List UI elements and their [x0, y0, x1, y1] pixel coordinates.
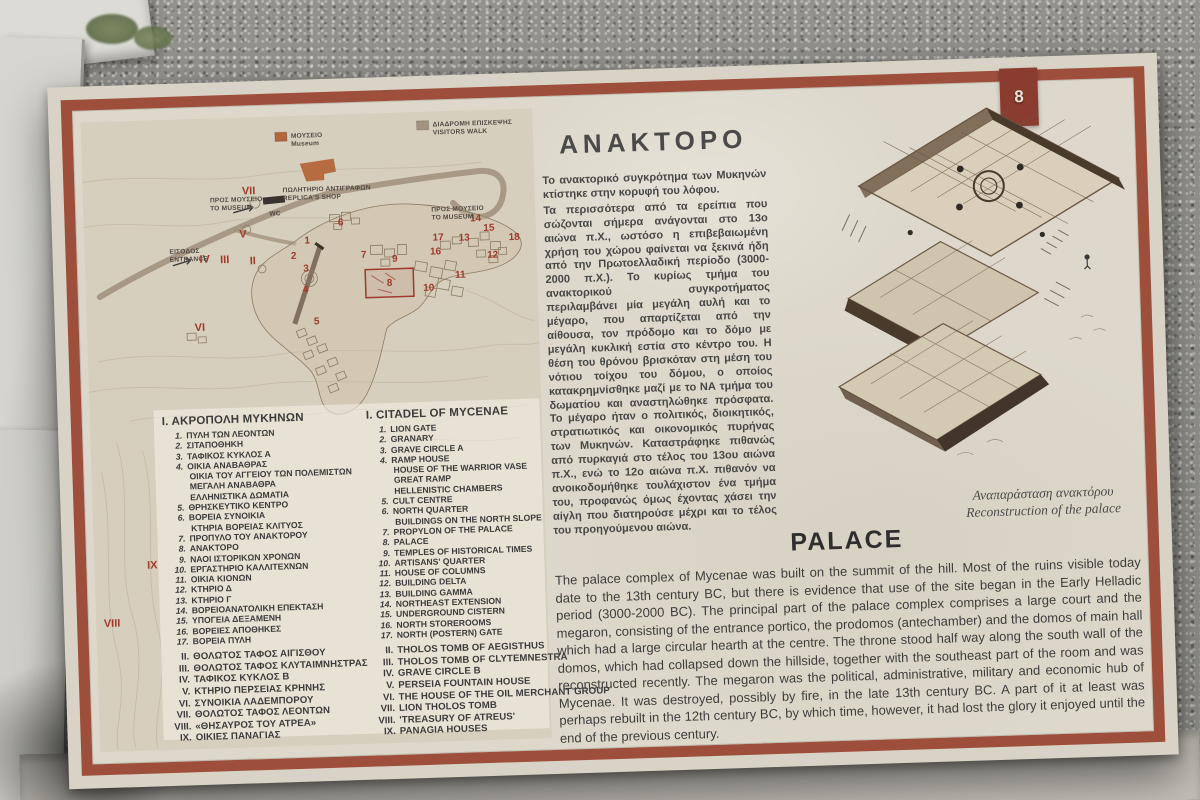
greek-title: ΑΝΑΚΤΟΡΟ [541, 123, 766, 161]
sign-frame: 8 [61, 66, 1166, 776]
svg-text:ENTRANCE: ENTRANCE [170, 256, 209, 264]
svg-text:18: 18 [508, 232, 520, 243]
svg-text:V: V [239, 228, 247, 240]
palace-description: PALACE The palace complex of Mycenae was… [554, 516, 1146, 747]
english-list-items: 1.LION GATE2.GRANARY3.GRAVE CIRCLE A4.RA… [364, 417, 608, 641]
svg-text:7: 7 [361, 250, 367, 261]
information-sign-panel: 8 [47, 53, 1179, 790]
svg-text:5: 5 [314, 316, 320, 327]
english-list-sections: II.THOLOS TOMB OF AEGISTHUSIII.THOLOS TO… [371, 638, 611, 738]
svg-text:10: 10 [423, 283, 435, 294]
palace-paragraph: The palace complex of Mycenae was built … [555, 553, 1146, 746]
svg-text:VI: VI [194, 322, 205, 334]
svg-text:12: 12 [487, 250, 499, 261]
map-key-english: I. CITADEL OF MYCENAE 1.LION GATE2.GRANA… [364, 400, 611, 731]
svg-text:Museum: Museum [291, 140, 319, 148]
map-key-greek: Ι. ΑΚΡΟΠΟΛΗ ΜΥΚΗΝΩΝ 1.ΠΥΛΗ ΤΩΝ ΛΕΟΝΤΩΝ2.… [160, 408, 370, 738]
svg-text:III: III [220, 254, 230, 266]
svg-text:II: II [250, 255, 256, 267]
svg-text:ΜΟΥΣΕΙΟ: ΜΟΥΣΕΙΟ [291, 132, 323, 140]
svg-text:ΤΟ MUSEUM: ΤΟ MUSEUM [210, 204, 252, 212]
svg-text:9: 9 [392, 254, 398, 265]
svg-text:17: 17 [432, 232, 444, 243]
svg-text:1: 1 [304, 235, 310, 246]
svg-text:WC: WC [269, 210, 281, 217]
svg-text:11: 11 [455, 270, 466, 281]
svg-text:4: 4 [303, 284, 309, 295]
svg-text:ΕΙΣΟΔΟΣ: ΕΙΣΟΔΟΣ [169, 248, 199, 256]
greek-list-sections: II.ΘΟΛΩΤΟΣ ΤΑΦΟΣ ΑΙΓΙΣΘΟΥIII.ΘΟΛΩΤΟΣ ΤΑΦ… [167, 646, 370, 745]
svg-text:16: 16 [430, 246, 442, 257]
palace-reconstruction-figure: Αναπαράσταση ανακτόρου Reconstruction of… [778, 84, 1139, 519]
reconstruction-caption: Αναπαράσταση ανακτόρου Reconstruction of… [965, 482, 1121, 521]
photo-of-information-sign: 8 [0, 0, 1200, 800]
text-column: ΑΝΑΚΤΟΡΟ Το ανακτορικό συγκρότημα των Μυ… [540, 84, 1146, 744]
plant [86, 14, 138, 44]
svg-text:3: 3 [303, 263, 309, 274]
palace-reconstruction-drawing [786, 86, 1143, 485]
svg-text:IX: IX [147, 559, 158, 571]
greek-paragraph-1: Το ανακτορικό συγκρότημα των Μυκηνών κτί… [542, 168, 767, 203]
svg-text:13: 13 [458, 232, 470, 243]
plant [134, 26, 172, 50]
greek-list-items: 1.ΠΥΛΗ ΤΩΝ ΛΕΟΝΤΩΝ2.ΣΙΤΑΠΟΘΗΚΗ3.ΤΑΦΙΚΟΣ … [160, 425, 367, 647]
map-key-panel: Ι. ΑΚΡΟΠΟΛΗ ΜΥΚΗΝΩΝ 1.ΠΥΛΗ ΤΩΝ ΛΕΟΝΤΩΝ2.… [153, 398, 549, 740]
svg-text:15: 15 [483, 223, 495, 234]
reconstruction-caption-greek: Αναπαράσταση ανακτόρου [972, 483, 1113, 502]
site-map-and-key: 123456789101112131415161718IIIIIIVVVIVII… [80, 102, 552, 758]
svg-text:6: 6 [338, 217, 344, 228]
svg-text:2: 2 [291, 251, 297, 262]
svg-text:8: 8 [387, 278, 393, 289]
svg-text:VIII: VIII [104, 618, 121, 631]
svg-text:TO MUSEUM: TO MUSEUM [431, 213, 473, 221]
